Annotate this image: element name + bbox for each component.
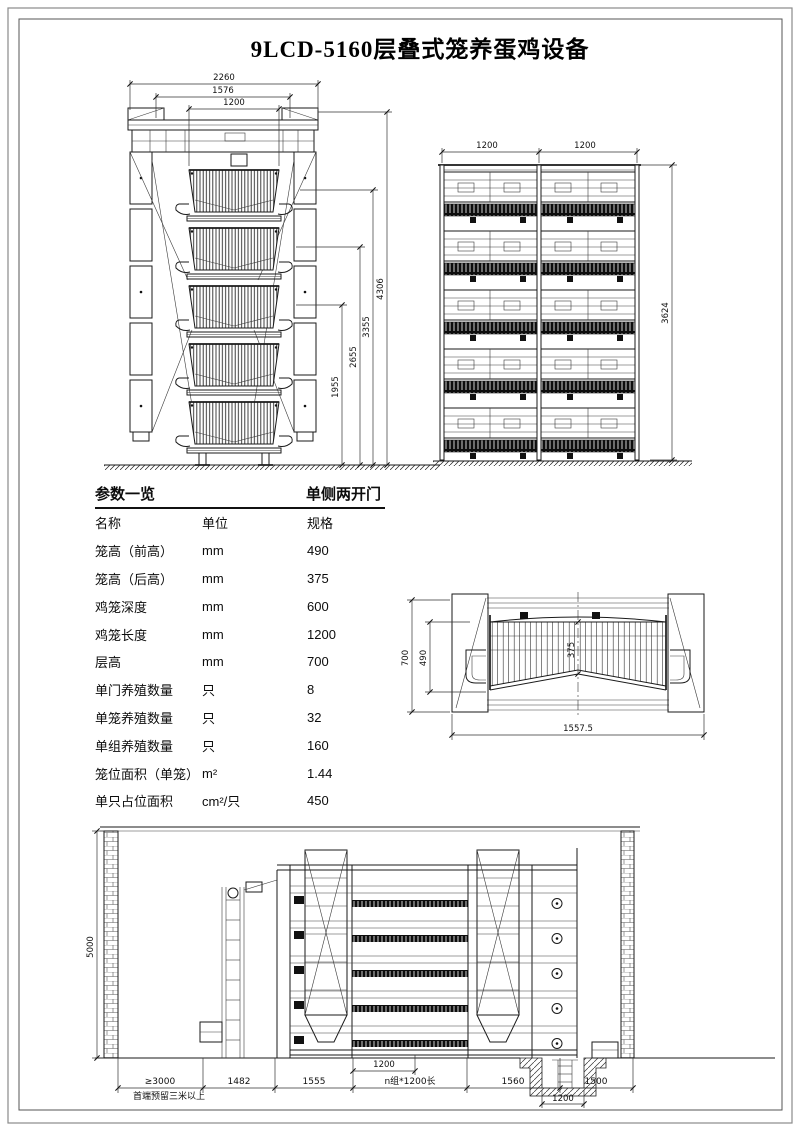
table-title: 参数一览 — [95, 486, 155, 503]
table-row: 笼高（前高） mm 490 — [95, 537, 385, 565]
dim-wall-height-label: 5000 — [86, 936, 96, 958]
dim-bay1-label: 1200 — [476, 141, 498, 151]
dim-h4-label: 4306 — [376, 278, 386, 300]
table-row: 鸡笼长度 mm 1200 — [95, 620, 385, 648]
col-unit: 单位 — [202, 513, 307, 532]
dim-h2-label: 2655 — [349, 346, 359, 368]
table-row: 单门养殖数量 只 8 — [95, 676, 385, 704]
dim-detail-width-label: 1557.5 — [563, 724, 593, 734]
dim-1500-label: 1500 — [585, 1077, 608, 1087]
col-spec: 规格 — [307, 513, 385, 532]
table-subtitle: 单侧两开门 — [306, 483, 381, 504]
dim-pit-width-label: 1200 — [552, 1094, 574, 1104]
dim-h1-label: 1955 — [331, 376, 341, 398]
front-elevation-view: 1200 1200 3624 — [433, 141, 692, 466]
cage-detail-view: 700 490 375 1557.5 — [401, 592, 707, 740]
table-row: 单笼养殖数量 只 32 — [95, 704, 385, 732]
dim-overall-width-label: 2260 — [213, 73, 235, 83]
dim-1560-label: 1560 — [502, 1077, 525, 1087]
dim-1482-label: 1482 — [228, 1077, 251, 1087]
col-name: 名称 — [95, 513, 202, 532]
table-row: 笼高（后高） mm 375 — [95, 565, 385, 593]
dim-height-label: 3624 — [661, 302, 671, 324]
clearance-note: 首端预留三米以上 — [133, 1090, 205, 1102]
dim-bay2-label: 1200 — [574, 141, 596, 151]
table-column-header: 名称 单位 规格 — [95, 509, 385, 537]
dim-rear-height-label: 375 — [567, 642, 577, 658]
dim-1555-label: 1555 — [303, 1077, 326, 1087]
dim-frame-width-label: 1576 — [212, 86, 234, 96]
dim-cage-width-label: 1200 — [223, 98, 245, 108]
table-row: 鸡笼深度 mm 600 — [95, 592, 385, 620]
parameter-table: 参数一览 单侧两开门 名称 单位 规格 笼高（前高） mm 490 笼高（后高）… — [95, 483, 385, 815]
dim-clearance-label: ≥3000 — [145, 1077, 176, 1087]
dim-tier-height-label: 700 — [401, 650, 411, 666]
table-row: 单组养殖数量 只 160 — [95, 731, 385, 759]
end-elevation-view: 2260 1576 1200 1955 2655 3355 4306 — [104, 73, 440, 470]
building-section-view: 5000 ≥3000 1482 1555 n组*1200长 156 — [86, 827, 775, 1108]
table-header: 参数一览 单侧两开门 — [95, 483, 385, 506]
table-row: 笼位面积（单笼） m² 1.44 — [95, 759, 385, 787]
dim-cage-length-label: 1200 — [373, 1060, 395, 1070]
dim-group-length-label: n组*1200长 — [384, 1075, 435, 1087]
table-row: 层高 mm 700 — [95, 648, 385, 676]
dim-h3-label: 3355 — [362, 316, 372, 338]
drawing-sheet: 9LCD-5160层叠式笼养蛋鸡设备 — [0, 0, 800, 1131]
table-row: 单只占位面积 cm²/只 450 — [95, 787, 385, 815]
dim-front-height-label: 490 — [419, 650, 429, 666]
